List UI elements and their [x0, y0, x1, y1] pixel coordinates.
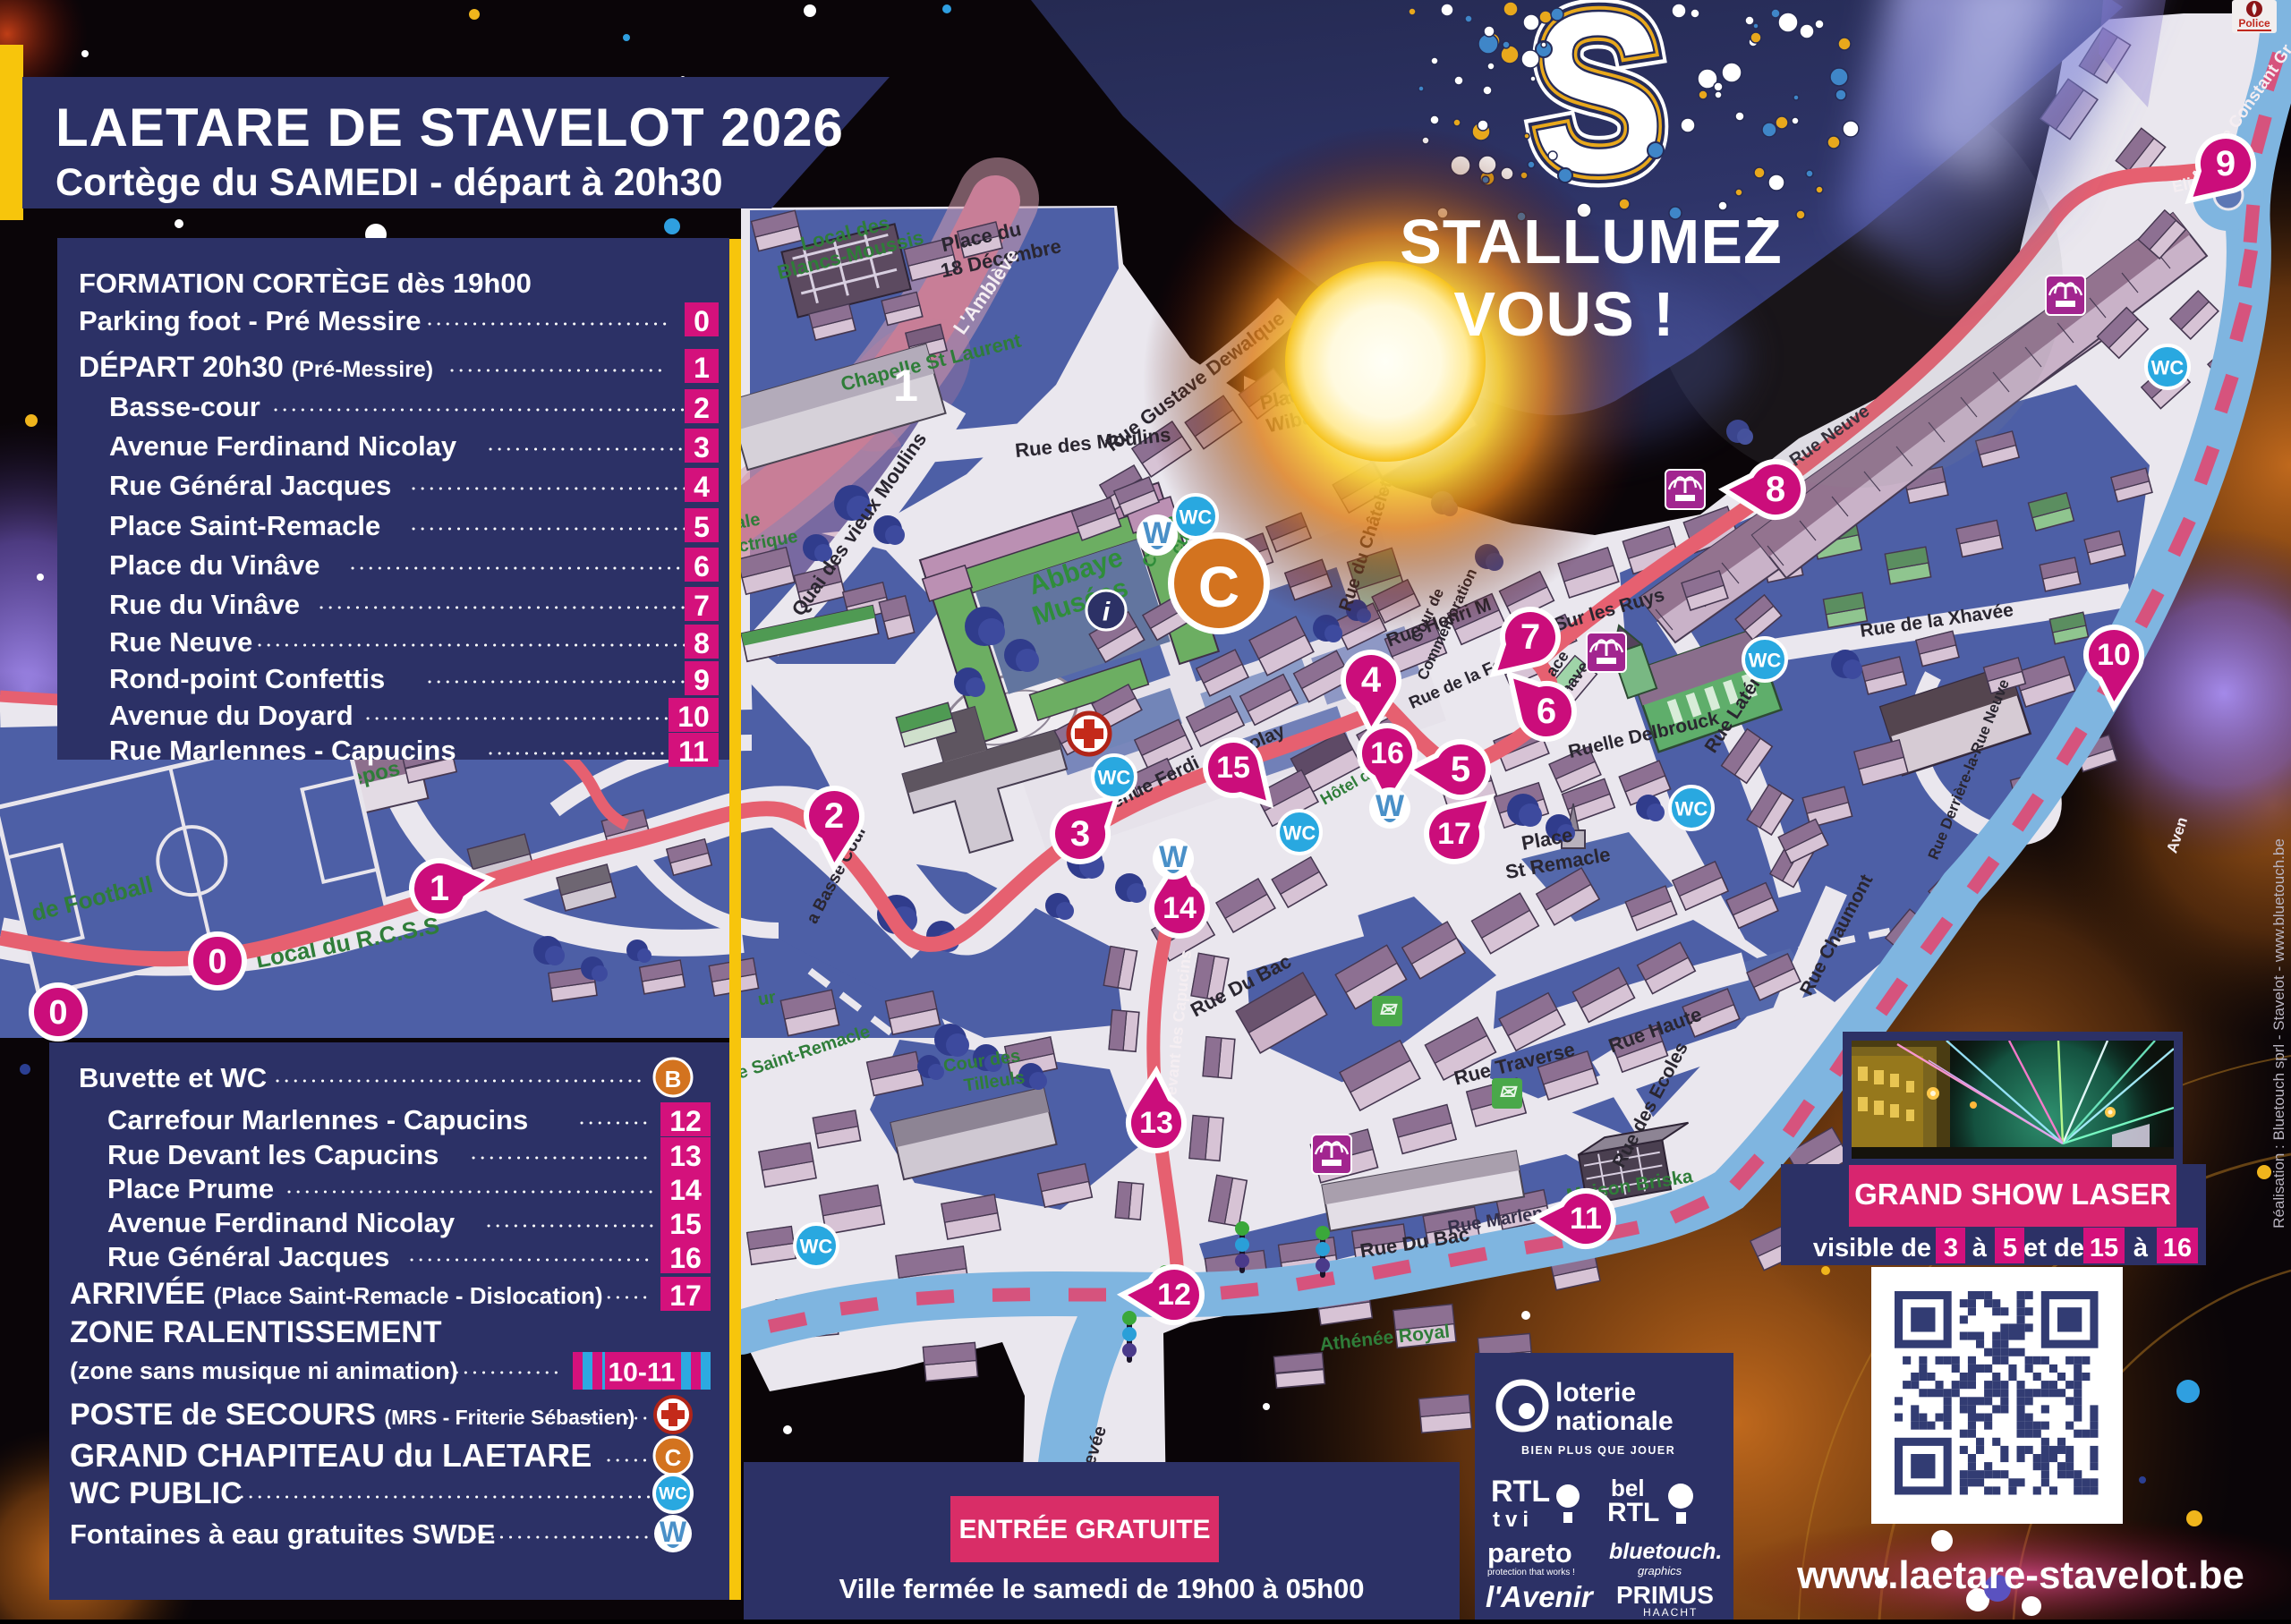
- svg-text:W: W: [1159, 840, 1188, 874]
- svg-text:7: 7: [694, 590, 710, 622]
- svg-text:C: C: [665, 1444, 682, 1471]
- svg-text:15: 15: [669, 1208, 702, 1240]
- svg-text:4: 4: [694, 471, 710, 503]
- svg-text:8: 8: [1766, 470, 1785, 509]
- svg-text:0: 0: [208, 943, 226, 981]
- svg-text:Avenue Ferdinand Nicolay: Avenue Ferdinand Nicolay: [107, 1207, 456, 1238]
- svg-text:C: C: [1198, 555, 1239, 619]
- svg-text:www.laetare-stavelot.be: www.laetare-stavelot.be: [1796, 1553, 2244, 1597]
- svg-text:4: 4: [1361, 660, 1382, 700]
- svg-text:16: 16: [2163, 1234, 2192, 1263]
- svg-text:7: 7: [1520, 617, 1540, 657]
- svg-text:Ville fermée le samedi de 19h0: Ville fermée le samedi de 19h00 à 05h00: [839, 1573, 1364, 1604]
- svg-text:protection that works !: protection that works !: [1487, 1568, 1575, 1577]
- svg-text:9: 9: [2216, 144, 2236, 183]
- svg-text:ur: ur: [756, 987, 778, 1009]
- svg-text:12: 12: [669, 1105, 702, 1137]
- svg-text:8: 8: [694, 627, 710, 659]
- svg-text:bluetouch.: bluetouch.: [1609, 1539, 1722, 1564]
- svg-text:WC: WC: [659, 1485, 687, 1504]
- svg-text:15: 15: [2090, 1234, 2118, 1263]
- svg-text:3: 3: [1070, 814, 1090, 854]
- svg-text:WC: WC: [1749, 650, 1782, 672]
- svg-text:12: 12: [1157, 1278, 1191, 1312]
- svg-text:Rue Général Jacques: Rue Général Jacques: [109, 470, 391, 501]
- svg-text:WC: WC: [1283, 822, 1316, 845]
- svg-text:WC: WC: [800, 1236, 833, 1258]
- svg-text:WC PUBLIC: WC PUBLIC: [70, 1476, 243, 1510]
- svg-text:Réalisation : Bluetouch sprl -: Réalisation : Bluetouch sprl - Stavelot …: [2270, 838, 2287, 1229]
- svg-text:14: 14: [669, 1174, 702, 1206]
- svg-text:WC: WC: [1098, 767, 1131, 789]
- svg-text:WC: WC: [1675, 798, 1708, 821]
- svg-text:à: à: [1972, 1234, 1988, 1263]
- svg-text:W: W: [1375, 789, 1405, 823]
- svg-text:5: 5: [1451, 750, 1470, 789]
- svg-text:B: B: [665, 1066, 682, 1093]
- svg-text:tvi: tvi: [1493, 1508, 1534, 1532]
- svg-text:Rue Général Jacques: Rue Général Jacques: [107, 1241, 389, 1272]
- svg-text:5: 5: [2003, 1234, 2017, 1263]
- svg-text:1: 1: [694, 352, 710, 384]
- svg-text:GRAND SHOW LASER: GRAND SHOW LASER: [1854, 1178, 2171, 1211]
- svg-text:Rue Devant les Capucins: Rue Devant les Capucins: [107, 1139, 439, 1170]
- svg-text:13: 13: [1139, 1106, 1173, 1140]
- svg-text:i: i: [1103, 598, 1111, 627]
- svg-text:et de: et de: [2023, 1234, 2084, 1263]
- svg-text:visible de: visible de: [1813, 1234, 1931, 1263]
- svg-text:Place Saint-Remacle: Place Saint-Remacle: [109, 510, 380, 541]
- svg-text:Place du Vinâve: Place du Vinâve: [109, 549, 320, 581]
- svg-text:graphics: graphics: [1638, 1564, 1682, 1577]
- svg-text:10: 10: [677, 701, 710, 733]
- svg-text:HAACHT: HAACHT: [1643, 1606, 1698, 1619]
- svg-text:WC: WC: [1180, 506, 1213, 529]
- svg-text:Parking foot - Pré Messire: Parking foot - Pré Messire: [79, 305, 421, 336]
- svg-text:STALLUMEZ: STALLUMEZ: [1400, 207, 1783, 276]
- svg-text:W: W: [660, 1516, 687, 1548]
- svg-text:ENTRÉE GRATUITE: ENTRÉE GRATUITE: [958, 1514, 1210, 1544]
- svg-text:l'Avenir: l'Avenir: [1486, 1580, 1595, 1613]
- svg-text:3: 3: [694, 431, 710, 463]
- svg-text:Cortège du SAMEDI - départ à 2: Cortège du SAMEDI - départ à 20h30: [55, 161, 723, 204]
- svg-text:5: 5: [694, 511, 710, 543]
- svg-text:2: 2: [694, 392, 710, 424]
- svg-text:0: 0: [48, 994, 67, 1032]
- svg-text:Avenue Ferdinand Nicolay: Avenue Ferdinand Nicolay: [109, 430, 457, 462]
- svg-text:3: 3: [1944, 1234, 1958, 1263]
- svg-text:RTL: RTL: [1607, 1498, 1659, 1527]
- svg-text:RTL: RTL: [1491, 1475, 1550, 1509]
- svg-text:14: 14: [1163, 891, 1197, 925]
- svg-text:W: W: [1143, 516, 1172, 550]
- svg-text:0: 0: [694, 305, 710, 337]
- svg-text:ZONE RALENTISSEMENT: ZONE RALENTISSEMENT: [70, 1315, 442, 1349]
- svg-text:17: 17: [669, 1280, 702, 1312]
- svg-text:(zone sans musique ni animatio: (zone sans musique ni animation): [70, 1357, 458, 1384]
- svg-text:PRIMUS: PRIMUS: [1616, 1581, 1714, 1609]
- svg-text:2: 2: [824, 796, 844, 836]
- svg-text:6: 6: [694, 550, 710, 582]
- svg-text:17: 17: [1437, 817, 1471, 851]
- svg-text:à: à: [2133, 1234, 2149, 1263]
- svg-text:nationale: nationale: [1555, 1407, 1674, 1436]
- svg-text:13: 13: [669, 1140, 702, 1172]
- svg-text:pareto: pareto: [1487, 1537, 1572, 1569]
- svg-text:GRAND CHAPITEAU du LAETARE: GRAND CHAPITEAU du LAETARE: [70, 1437, 592, 1474]
- svg-text:Basse-cour: Basse-cour: [109, 391, 260, 422]
- svg-text:9: 9: [694, 664, 710, 696]
- svg-text:Rue Neuve: Rue Neuve: [109, 626, 252, 658]
- svg-text:LAETARE DE STAVELOT 2026: LAETARE DE STAVELOT 2026: [55, 98, 844, 157]
- svg-text:Fontaines à eau gratuites SWDE: Fontaines à eau gratuites SWDE: [70, 1518, 495, 1550]
- svg-text:10: 10: [2097, 638, 2131, 672]
- svg-text:✉: ✉: [1499, 1081, 1518, 1103]
- svg-text:BIEN PLUS QUE JOUER: BIEN PLUS QUE JOUER: [1521, 1444, 1675, 1457]
- svg-text:16: 16: [669, 1242, 702, 1274]
- svg-text:Police: Police: [2238, 17, 2270, 30]
- svg-text:Buvette et WC: Buvette et WC: [79, 1062, 267, 1093]
- svg-text:VOUS !: VOUS !: [1453, 279, 1674, 349]
- svg-text:1: 1: [430, 869, 449, 908]
- svg-text:Place Prume: Place Prume: [107, 1173, 274, 1204]
- svg-text:WC: WC: [2151, 357, 2185, 379]
- svg-text:✉: ✉: [1379, 999, 1398, 1021]
- svg-text:6: 6: [1537, 692, 1556, 731]
- svg-text:FORMATION CORTÈGE dès 19h00: FORMATION CORTÈGE dès 19h00: [79, 268, 532, 299]
- svg-text:loterie: loterie: [1555, 1378, 1636, 1407]
- svg-text:Carrefour Marlennes - Capucins: Carrefour Marlennes - Capucins: [107, 1104, 528, 1135]
- svg-text:Rue Marlennes - Capucins: Rue Marlennes - Capucins: [109, 735, 456, 766]
- svg-text:11: 11: [1570, 1202, 1602, 1236]
- svg-text:11: 11: [678, 735, 709, 768]
- svg-text:15: 15: [1216, 751, 1250, 785]
- svg-text:Rond-point Confettis: Rond-point Confettis: [109, 663, 385, 694]
- svg-text:Avenue du Doyard: Avenue du Doyard: [109, 700, 353, 731]
- svg-text:10-11: 10-11: [608, 1358, 675, 1388]
- svg-text:ARRIVÉE (Place Saint-Remacle -: ARRIVÉE (Place Saint-Remacle - Dislocati…: [70, 1277, 603, 1311]
- svg-text:16: 16: [1370, 736, 1404, 770]
- svg-text:1: 1: [893, 361, 918, 411]
- svg-text:Rue du Vinâve: Rue du Vinâve: [109, 589, 300, 620]
